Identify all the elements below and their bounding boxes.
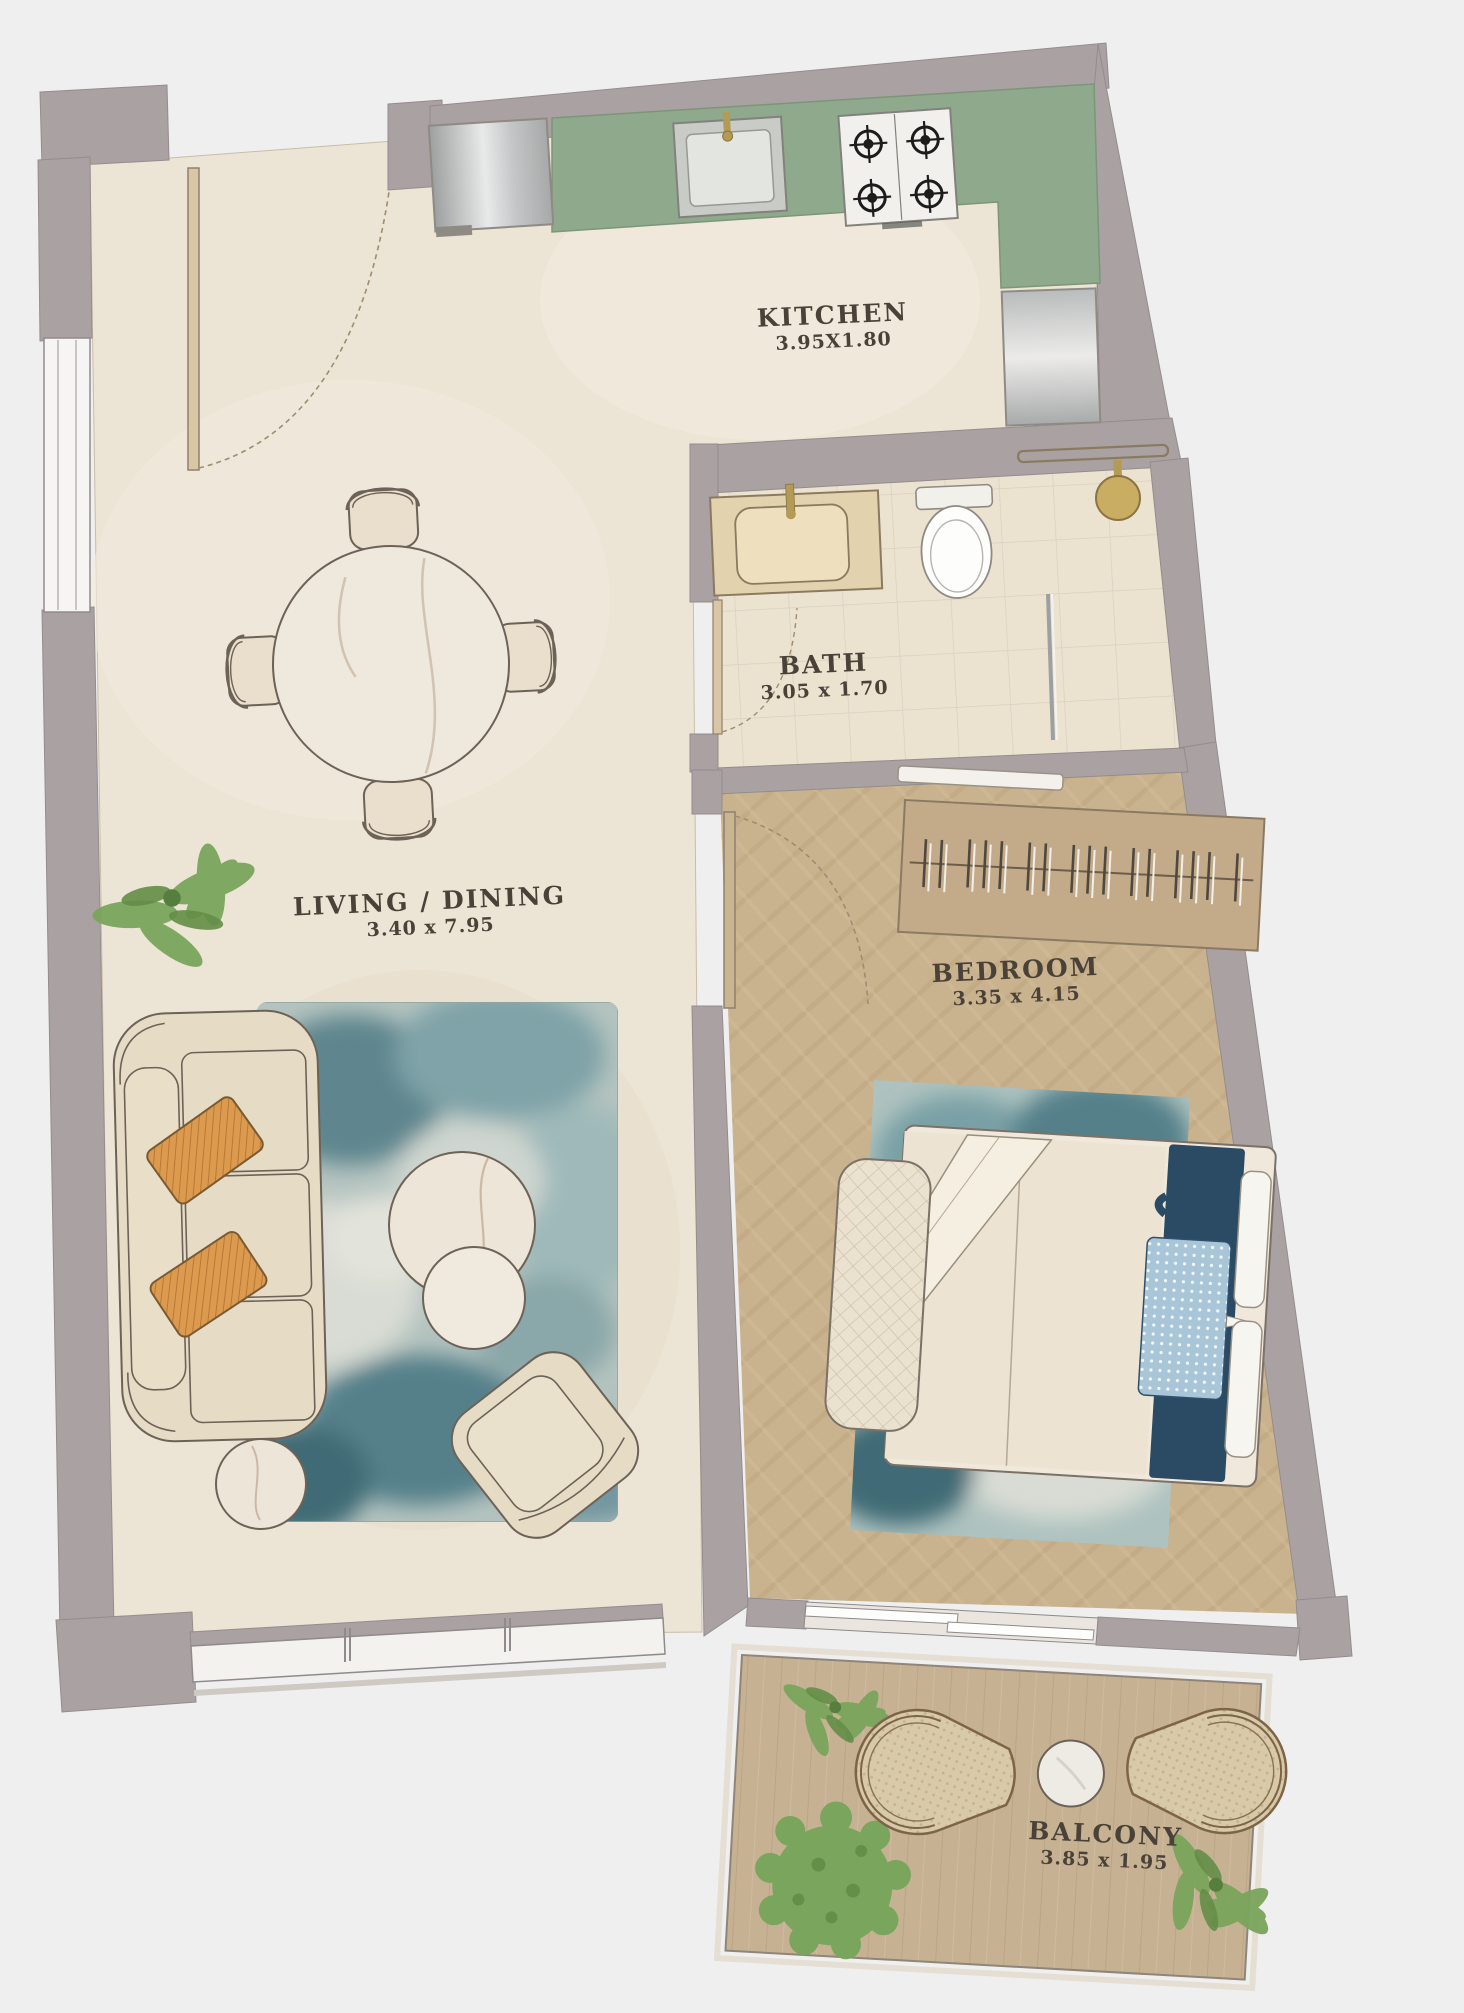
sofa (112, 1009, 327, 1442)
dining-chair-top (346, 487, 421, 550)
wall-partition-bedroom-upper (692, 770, 722, 814)
double-bed (884, 1125, 1276, 1487)
kitchen-appliance (1002, 288, 1101, 425)
stove (838, 108, 958, 232)
fridge (429, 118, 553, 231)
wall-left-upper (38, 157, 92, 341)
balcony-sliding-door (804, 1602, 1098, 1644)
kitchen-label: KITCHEN 3.95X1.80 (756, 296, 910, 358)
shower-head (1096, 476, 1140, 520)
bath-label: BATH 3.05 x 1.70 (759, 646, 889, 707)
wall-partition-bath-lower (690, 734, 718, 772)
wall-top-left-pier (40, 85, 169, 167)
floor-plan-drawing (0, 0, 1464, 2013)
window-left (44, 338, 90, 612)
bedroom-label: BEDROOM 3.35 x 4.15 (931, 951, 1101, 1013)
balcony (717, 1647, 1303, 1990)
balcony-label: BALCONY 3.85 x 1.95 (1027, 1815, 1184, 1877)
kitchen-sink (673, 109, 787, 218)
wall-bedroom-bottom-left (746, 1598, 808, 1629)
wall-bedroom-corner-block (1296, 1596, 1352, 1660)
bed-pillow-patterned (1138, 1237, 1231, 1400)
floor-plan-page: KITCHEN 3.95X1.80 BATH 3.05 x 1.70 LIVIN… (0, 0, 1464, 2013)
wardrobe (898, 800, 1264, 951)
bath-vanity (710, 480, 883, 595)
bed-bench (824, 1157, 932, 1432)
side-table (216, 1439, 306, 1529)
wall-bedroom-bottom-right (1096, 1617, 1300, 1656)
wall-right-upper (1094, 44, 1170, 430)
dining-chair-bottom (361, 778, 436, 841)
wall-bottom-left-block (56, 1612, 196, 1712)
